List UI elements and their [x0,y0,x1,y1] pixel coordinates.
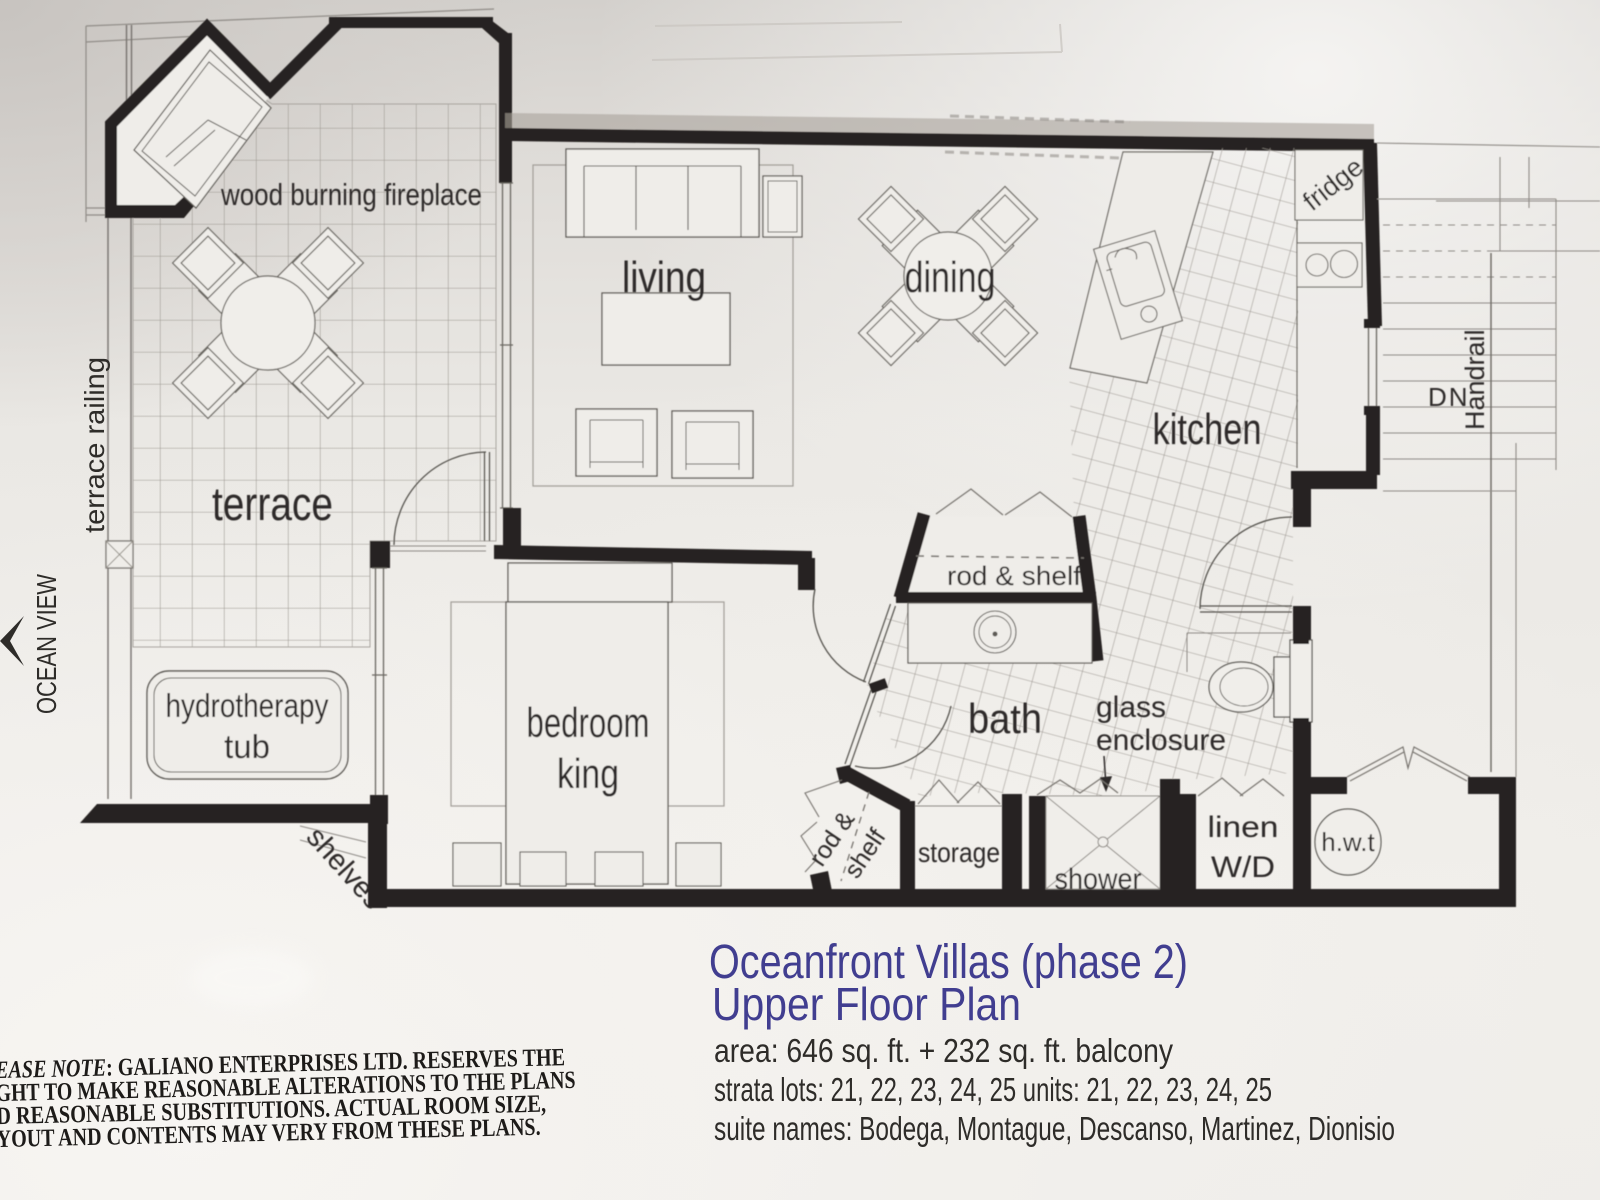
svg-text:strata lots: 21, 22, 23, 24, 2: strata lots: 21, 22, 23, 24, 25 units: 2… [714,1071,1272,1108]
svg-text:storage: storage [918,837,1000,868]
svg-text:bedroom: bedroom [527,699,650,746]
svg-text:terrace railing: terrace railing [79,357,110,533]
svg-text:terrace: terrace [212,477,333,530]
svg-text:suite names: Bodega, Montague,: suite names: Bodega, Montague, Descanso,… [714,1110,1395,1147]
svg-text:shower: shower [1055,863,1142,896]
svg-text:enclosure: enclosure [1096,724,1226,757]
svg-text:OCEAN VIEW: OCEAN VIEW [31,574,62,714]
svg-text:area: 646 sq. ft. + 232 sq. ft: area: 646 sq. ft. + 232 sq. ft. balcony [714,1032,1173,1069]
svg-text:Handrail: Handrail [1460,329,1490,430]
svg-text:wood burning fireplace: wood burning fireplace [220,177,482,212]
svg-text:DN: DN [1428,382,1470,412]
svg-text:tub: tub [224,728,270,765]
svg-text:linen: linen [1208,811,1279,844]
svg-text:rod & shelf: rod & shelf [947,561,1082,591]
svg-text:hydrotherapy: hydrotherapy [166,687,329,724]
svg-text:dining: dining [905,253,996,302]
svg-text:living: living [622,253,706,302]
svg-text:kitchen: kitchen [1153,405,1262,454]
svg-text:Upper Floor Plan: Upper Floor Plan [712,978,1021,1030]
svg-text:bath: bath [968,695,1042,742]
svg-text:king: king [557,750,619,797]
svg-text:glass: glass [1096,691,1166,724]
svg-text:W/D: W/D [1211,851,1275,884]
svg-text:h.w.t: h.w.t [1321,827,1375,857]
